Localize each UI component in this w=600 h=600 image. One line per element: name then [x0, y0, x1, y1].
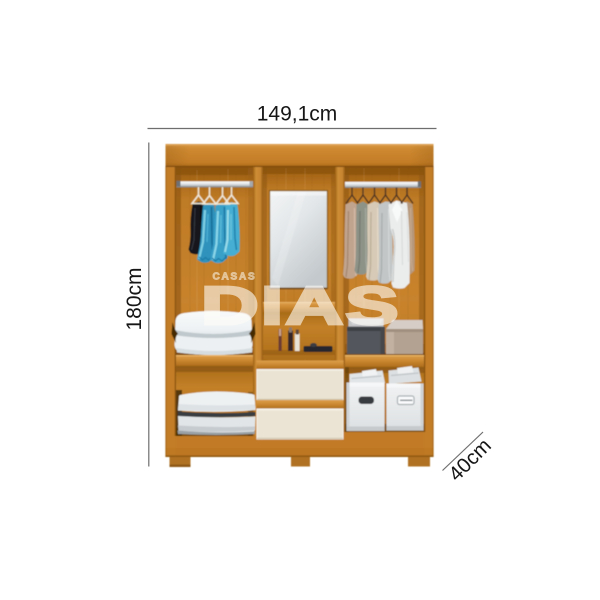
svg-text:180cm: 180cm	[123, 267, 146, 330]
svg-text:149,1cm: 149,1cm	[257, 103, 338, 126]
svg-text:DIAS: DIAS	[201, 276, 401, 336]
